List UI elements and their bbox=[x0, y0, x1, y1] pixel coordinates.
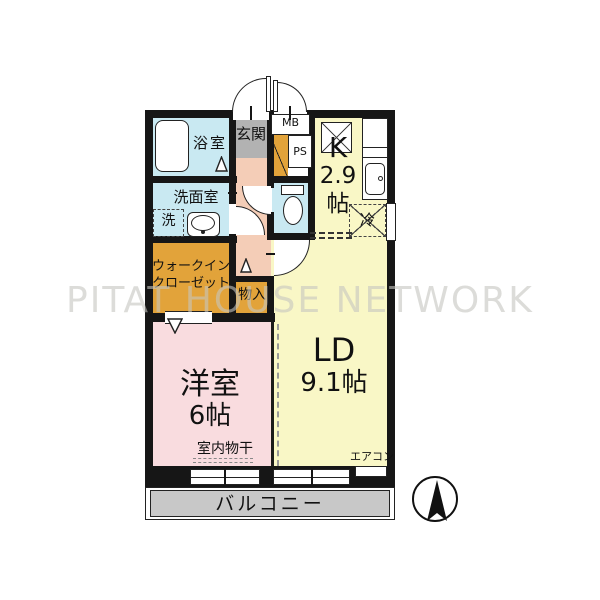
corridor-door-marker bbox=[240, 258, 252, 273]
tick-window-western bbox=[224, 467, 226, 485]
western-room-label: 洋室 6帖 bbox=[158, 369, 262, 432]
counter-line-2 bbox=[363, 157, 387, 158]
western-room-label-l2: 6帖 bbox=[158, 401, 262, 432]
washing-machine-label: 洗 bbox=[153, 214, 184, 229]
entrance-door-arc bbox=[232, 78, 266, 112]
watermark-text: PITAT HOUSE NETWORK bbox=[66, 280, 534, 321]
entrance-label: 玄関 bbox=[234, 126, 268, 143]
entrance-door-leaf bbox=[266, 76, 271, 112]
counter-line-1 bbox=[363, 147, 387, 148]
washroom-sink-basin bbox=[191, 215, 215, 231]
kitchen-label-l2: 2.9 bbox=[312, 163, 364, 190]
indoor-drying-label: 室内物干 bbox=[192, 442, 258, 457]
mb-door-arc bbox=[277, 82, 307, 112]
tick-corridor-east bbox=[266, 253, 275, 255]
wall-bath-south bbox=[145, 176, 237, 183]
ld-label-l2: 9.1帖 bbox=[288, 367, 380, 399]
tick-mb bbox=[289, 106, 291, 120]
kitchen-label: K 2.9 帖 bbox=[312, 133, 364, 218]
tick-window-ld bbox=[311, 467, 313, 485]
kitchen-faucet bbox=[378, 176, 383, 181]
tick-corridor-west bbox=[228, 192, 237, 194]
ld-label: LD 9.1帖 bbox=[288, 333, 380, 399]
compass-north-needle bbox=[414, 478, 460, 524]
divider-western-ld bbox=[271, 322, 274, 466]
kitchen-window bbox=[386, 203, 396, 241]
wall-washroom-south bbox=[145, 236, 237, 243]
kitchen-ld-dash-1 bbox=[310, 232, 352, 234]
kitchen-counter bbox=[362, 118, 388, 200]
bathroom-label: 浴室 bbox=[184, 135, 236, 152]
washroom-label: 洗面室 bbox=[158, 189, 234, 206]
kitchen-ld-dash-2 bbox=[310, 237, 352, 239]
washroom-door-opening bbox=[229, 204, 236, 234]
aircon-box bbox=[355, 466, 387, 477]
tick-entrance bbox=[250, 106, 252, 120]
balcony-label: バルコニー bbox=[150, 494, 390, 515]
mb-door-leaf bbox=[273, 80, 278, 112]
kitchen-label-l1: K bbox=[312, 133, 364, 163]
washroom-sink bbox=[187, 212, 220, 237]
indoor-drying-dash bbox=[193, 458, 253, 463]
washroom-sink-drain bbox=[201, 230, 205, 234]
bathroom-door-marker bbox=[215, 156, 228, 172]
kitchen-label-l3: 帖 bbox=[312, 190, 364, 218]
aircon-label: エアコン bbox=[350, 451, 392, 463]
toilet-tank bbox=[281, 185, 304, 195]
floorplan-canvas: MB PS 洗 冷 バルコニー bbox=[0, 0, 600, 600]
ld-label-l1: LD bbox=[288, 333, 380, 367]
wic-label-l1: ウォークイン bbox=[150, 258, 232, 275]
pipe-space-label: PS bbox=[288, 146, 312, 158]
western-room-label-l1: 洋室 bbox=[158, 369, 262, 401]
divider-western-ld-dash bbox=[277, 324, 279, 466]
toilet-bowl bbox=[283, 196, 303, 225]
compass bbox=[412, 476, 458, 522]
